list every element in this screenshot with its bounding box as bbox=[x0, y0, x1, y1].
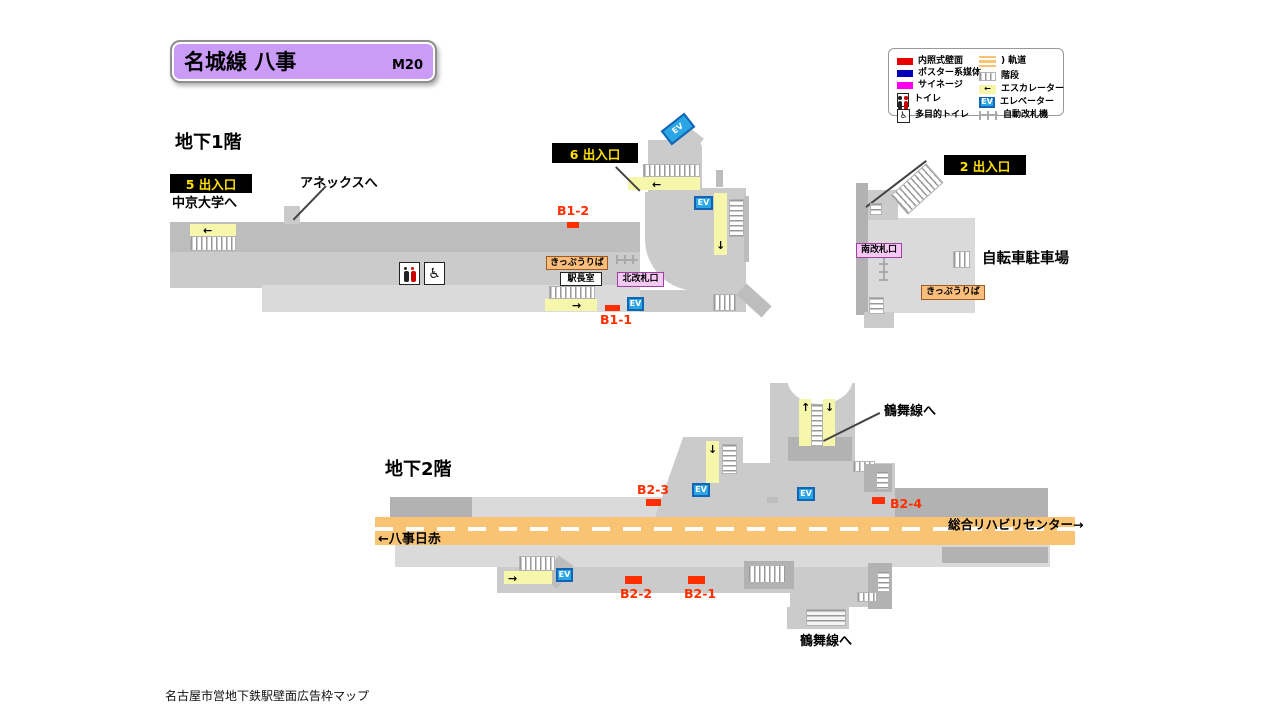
legend-item-elevator: EV エレベーター bbox=[979, 96, 1054, 108]
b1-pillar bbox=[716, 170, 723, 187]
elevator-badge-b2-center: EV bbox=[797, 487, 815, 501]
legend-label: ポスター系媒体 bbox=[918, 69, 981, 78]
b2-southeast-stairs-small bbox=[877, 571, 890, 592]
ad-label-b1-2: B1-2 bbox=[557, 205, 589, 218]
exit2-diagonal-stairs bbox=[890, 163, 943, 214]
legend-item-stairs: 階段 bbox=[979, 70, 1019, 82]
exit2-badge: 2 出入口 bbox=[944, 155, 1026, 175]
ad-mark-b2-1 bbox=[688, 576, 705, 584]
b2-southeast-stairs-low bbox=[857, 592, 877, 602]
yagoto-nisseki-direction: ←八事日赤 bbox=[378, 533, 441, 547]
escalator-arrow-icon: ← bbox=[984, 85, 991, 93]
legend-label: エレベーター bbox=[1000, 98, 1054, 107]
b2-south-passage-stairs bbox=[806, 609, 846, 626]
exit6-badge: 6 出入口 bbox=[552, 143, 638, 163]
b2-floor-label: 地下2階 bbox=[385, 455, 452, 481]
b2-tower-stairs bbox=[811, 404, 823, 446]
rehab-center-direction: 総合リハビリセンター→ bbox=[948, 518, 1083, 532]
exit5-badge: 5 出入口 bbox=[170, 174, 252, 193]
arrow-down-icon: ↓ bbox=[825, 402, 834, 413]
ad-label-b2-3: B2-3 bbox=[637, 484, 669, 497]
legend-item-track: ) 軌道 bbox=[979, 54, 1026, 68]
legend-item-auto-gate: 自動改札機 bbox=[979, 109, 1048, 121]
footer-caption: 名古屋市営地下鉄駅壁面広告枠マップ bbox=[165, 687, 369, 704]
b1-corridor-foot bbox=[640, 290, 700, 312]
legend-label: トイレ bbox=[914, 95, 941, 104]
legend: 内照式壁面 ポスター系媒体 サイネージ トイレ ♿ 多目的トイレ ) 軌道 階段 bbox=[888, 48, 1064, 116]
station-title-capsule: 名城線 八事 M20 bbox=[170, 40, 437, 83]
b1-east-wall bbox=[744, 196, 749, 262]
b2-northeast-stairs-small bbox=[876, 471, 889, 490]
b2-wing-stairs bbox=[722, 444, 737, 474]
b1-southeast-stairs bbox=[713, 294, 736, 311]
b1-vertical-stairs bbox=[729, 199, 744, 237]
legend-item-signage: サイネージ bbox=[897, 79, 963, 91]
b1-exit5-escalator bbox=[190, 224, 236, 236]
b1-floor-label: 地下1階 bbox=[175, 128, 242, 154]
arrow-down-icon: ↓ bbox=[716, 240, 725, 251]
legend-label: 内照式壁面 bbox=[918, 57, 963, 66]
arrow-down-icon: ↓ bbox=[708, 444, 717, 455]
b2-west-stairs bbox=[519, 556, 555, 571]
ad-mark-b2-4 bbox=[872, 497, 885, 504]
legend-label: 多目的トイレ bbox=[915, 111, 969, 120]
ad-label-b2-1: B2-1 bbox=[684, 588, 716, 601]
wheelchair-icon: ♿ bbox=[897, 109, 910, 123]
legend-label: 自動改札機 bbox=[1003, 111, 1048, 120]
elevator-badge-b2-west: EV bbox=[692, 483, 710, 497]
tsurumai-bottom-label: 鶴舞線へ bbox=[800, 635, 852, 649]
illuminated-wall-swatch bbox=[897, 58, 913, 65]
b2-south-stairs bbox=[748, 565, 786, 583]
auto-gate-north bbox=[616, 255, 638, 264]
b2-platform-south-east-block bbox=[942, 547, 1048, 563]
exit2-small-stairs-top bbox=[870, 203, 882, 215]
elevator-icon: EV bbox=[979, 97, 995, 108]
poster-media-swatch bbox=[897, 70, 913, 77]
south-gate-badge: 南改札口 bbox=[856, 243, 902, 258]
b1-exit6-stairs bbox=[643, 164, 700, 177]
legend-item-escalator: ← エスカレーター bbox=[979, 83, 1064, 95]
chukyo-univ-label: 中京大学へ bbox=[172, 197, 237, 211]
ad-label-b2-4: B2-4 bbox=[890, 498, 922, 511]
toilet-icon bbox=[897, 93, 909, 107]
signage-swatch bbox=[897, 82, 913, 89]
stairs-swatch bbox=[979, 72, 996, 81]
elevator-badge-b1-mid: EV bbox=[694, 196, 713, 210]
auto-gate-south bbox=[879, 255, 888, 281]
legend-label: 軌道 bbox=[1008, 57, 1026, 66]
legend-label: サイネージ bbox=[918, 81, 963, 90]
toilet-icon bbox=[399, 262, 420, 285]
b2-platform-north-west-block bbox=[390, 497, 472, 517]
arrow-right-icon: → bbox=[508, 573, 517, 584]
track-paren: ) bbox=[1001, 57, 1005, 66]
b1-exit5-stairs bbox=[190, 236, 236, 251]
tsurumai-top-label: 鶴舞線へ bbox=[884, 405, 936, 419]
arrow-left-icon: ← bbox=[203, 225, 212, 236]
station-code-badge: M20 bbox=[392, 57, 423, 75]
b1-center-escalator bbox=[545, 299, 597, 311]
b2-tower-curve-notch bbox=[787, 352, 853, 404]
b1-center-stairs bbox=[549, 286, 595, 299]
station-wall-ad-map: 名城線 八事 M20 内照式壁面 ポスター系媒体 サイネージ トイレ ♿ 多目的… bbox=[0, 0, 1280, 720]
arrow-up-icon: ↑ bbox=[801, 402, 810, 413]
stationmaster-office: 駅長室 bbox=[560, 272, 602, 286]
ad-label-b2-2: B2-2 bbox=[620, 588, 652, 601]
wheelchair-icon: ♿ bbox=[424, 262, 445, 285]
elevator-badge-b2-southwest: EV bbox=[556, 568, 573, 582]
ad-mark-b2-2 bbox=[625, 576, 642, 584]
arrow-right-icon: → bbox=[572, 300, 581, 311]
auto-gate-icon bbox=[979, 111, 998, 120]
legend-item-poster-media: ポスター系媒体 bbox=[897, 67, 981, 79]
ad-mark-b2-3 bbox=[646, 499, 661, 506]
annex-label: アネックスへ bbox=[300, 177, 378, 191]
track-swatch bbox=[979, 56, 996, 67]
ad-mark-b1-2 bbox=[567, 222, 579, 228]
elevator-badge-b1-center: EV bbox=[627, 297, 644, 311]
ad-label-b1-1: B1-1 bbox=[600, 314, 632, 327]
arrow-left-icon: ← bbox=[652, 179, 661, 190]
ad-mark-b1-1 bbox=[605, 305, 620, 311]
legend-label: エスカレーター bbox=[1001, 85, 1064, 94]
north-gate-badge: 北改札口 bbox=[617, 272, 664, 287]
bicycle-parking-label: 自転車駐車場 bbox=[982, 247, 1069, 268]
exit2-east-stairs bbox=[953, 251, 970, 268]
legend-item-toilet: トイレ bbox=[897, 92, 941, 107]
exit2-south-passage bbox=[864, 312, 894, 328]
b2-pillar bbox=[767, 497, 778, 503]
legend-label: 階段 bbox=[1001, 72, 1019, 81]
legend-item-multipurpose-toilet: ♿ 多目的トイレ bbox=[897, 108, 969, 123]
station-title: 名城線 八事 bbox=[184, 50, 392, 75]
ticket-office-north: きっぷうりば bbox=[546, 256, 608, 270]
exit2-small-stairs-bottom bbox=[869, 297, 884, 314]
ticket-office-south: きっぷうりば bbox=[921, 285, 985, 300]
legend-item-illuminated-wall: 内照式壁面 bbox=[897, 55, 963, 67]
